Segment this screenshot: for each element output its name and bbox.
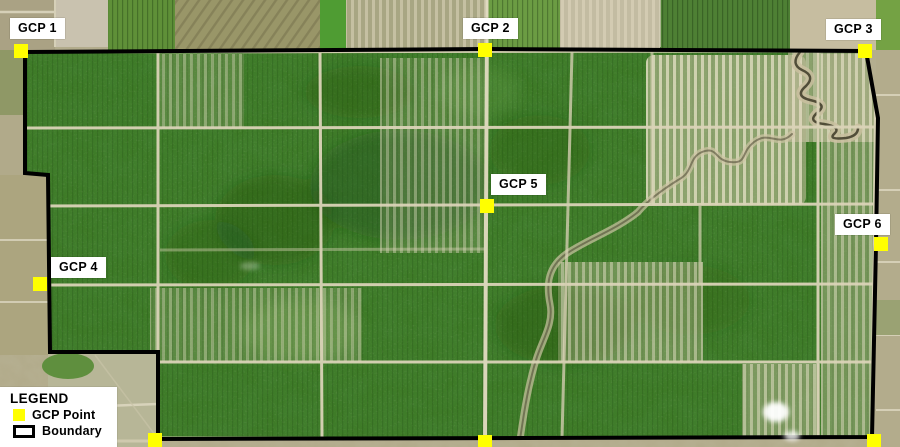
gcp-label-6: GCP 6 xyxy=(835,214,890,235)
gcp-point-swatch-icon xyxy=(13,409,25,421)
legend-item-boundary: Boundary xyxy=(13,424,117,438)
gcp-marker-bottom-right xyxy=(867,434,881,447)
gcp-marker-6 xyxy=(874,237,888,251)
gcp-marker-4 xyxy=(33,277,47,291)
legend-title: LEGEND xyxy=(10,391,117,406)
legend-item-gcp-point: GCP Point xyxy=(13,408,117,422)
gcp-marker-bottom-left xyxy=(148,433,162,447)
gcp-marker-3 xyxy=(858,44,872,58)
gcp-marker-1 xyxy=(14,44,28,58)
orthomosaic-image xyxy=(0,0,900,447)
gcp-marker-2 xyxy=(478,43,492,57)
legend-item-label: GCP Point xyxy=(32,408,95,422)
gcp-label-4: GCP 4 xyxy=(51,257,106,278)
legend-item-label: Boundary xyxy=(42,424,102,438)
aerial-map-canvas: GCP 1 GCP 2 GCP 3 GCP 4 GCP 5 GCP 6 LEGE… xyxy=(0,0,900,447)
boundary-swatch-icon xyxy=(13,425,35,438)
legend: LEGEND GCP Point Boundary xyxy=(0,387,117,447)
gcp-marker-bottom-middle xyxy=(478,435,492,447)
gcp-label-5: GCP 5 xyxy=(491,174,546,195)
gcp-marker-5 xyxy=(480,199,494,213)
gcp-label-3: GCP 3 xyxy=(826,19,881,40)
gcp-label-2: GCP 2 xyxy=(463,18,518,39)
gcp-label-1: GCP 1 xyxy=(10,18,65,39)
